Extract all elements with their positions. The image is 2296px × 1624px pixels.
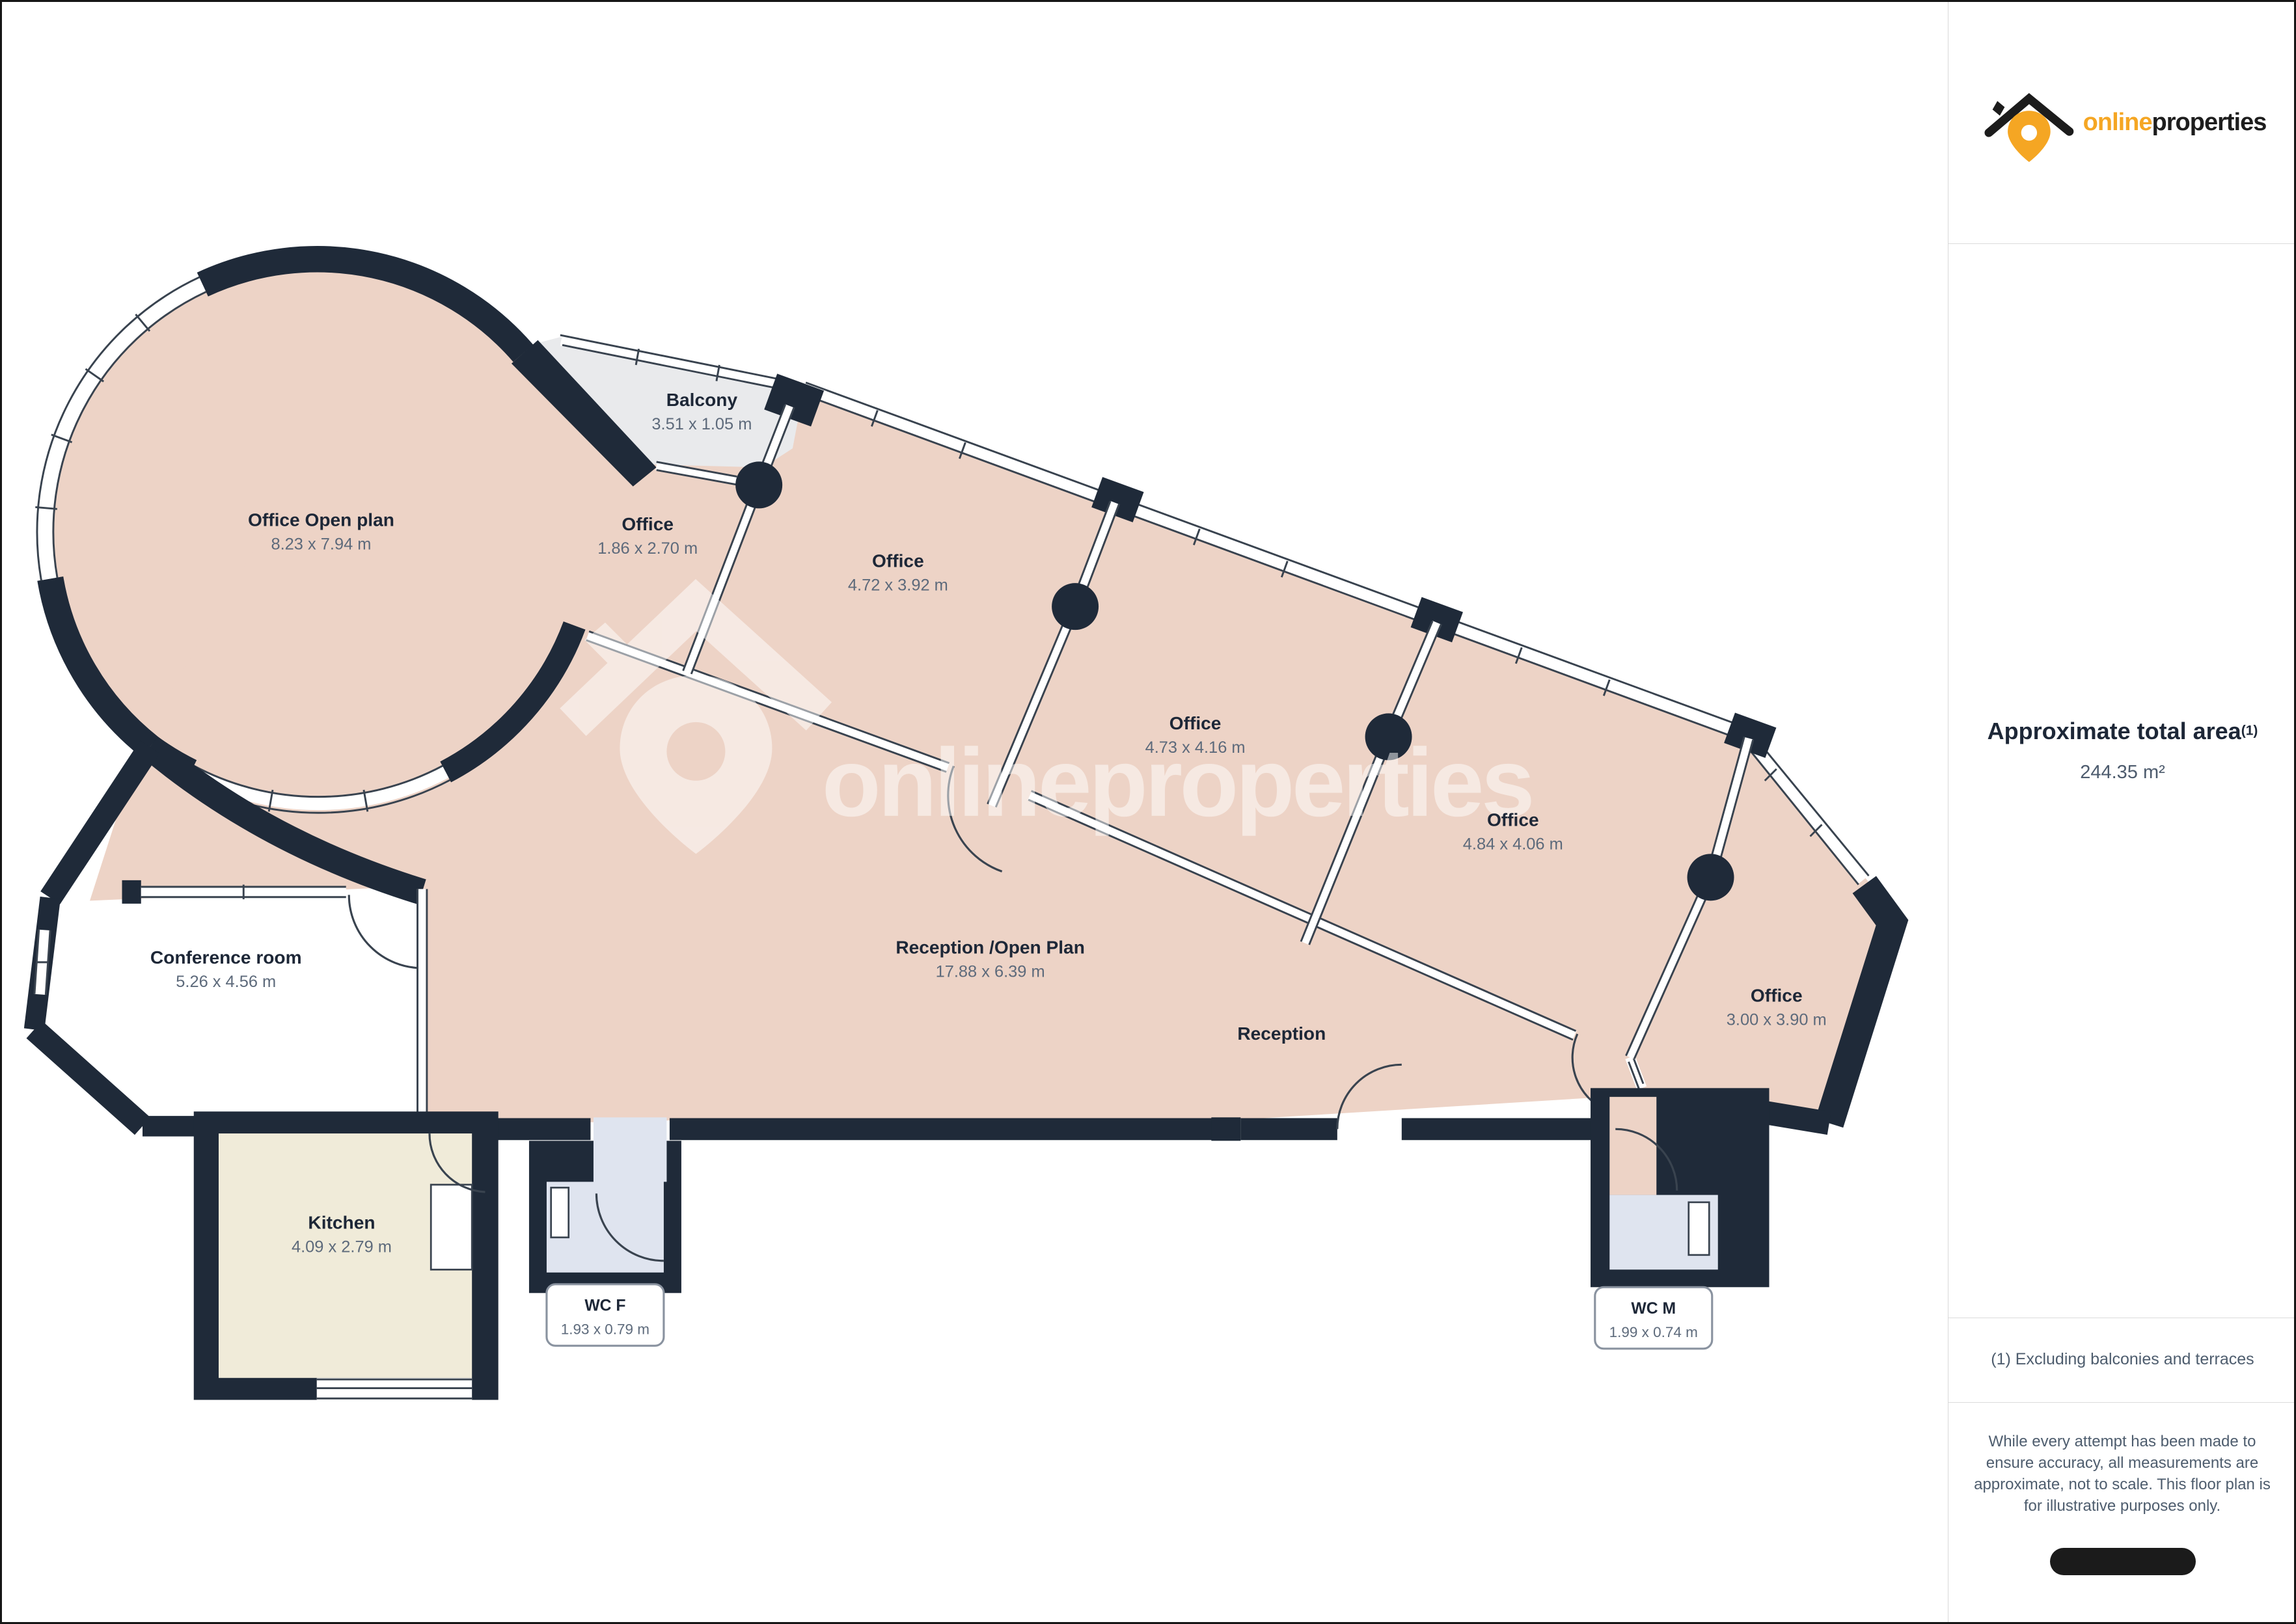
conference-room [34,880,427,1126]
svg-text:WC M: WC M [1631,1300,1676,1318]
brand-wordmark: onlineproperties [2083,109,2267,137]
wordmark-online: online [2083,109,2152,136]
svg-text:Reception: Reception [1237,1023,1326,1044]
total-area-footnote-marker: (1) [2241,724,2258,738]
total-area-title: Approximate total area [1988,718,2241,744]
svg-text:17.88 x 6.39 m: 17.88 x 6.39 m [936,962,1045,981]
svg-text:1.93 x 0.79 m: 1.93 x 0.79 m [561,1321,649,1337]
svg-text:3.51 x 1.05 m: 3.51 x 1.05 m [651,415,752,433]
svg-text:Balcony: Balcony [666,390,738,410]
room-label-conference: Conference room 5.26 x 4.56 m [150,947,302,991]
svg-text:1.99 x 0.74 m: 1.99 x 0.74 m [1609,1324,1698,1340]
wc-m [1591,1088,1769,1348]
wordmark-properties: properties [2152,109,2267,136]
disclaimer-text: While every attempt has been made to ens… [1966,1431,2278,1517]
svg-text:1.86 x 2.70 m: 1.86 x 2.70 m [597,539,698,558]
footnote-text: (1) Excluding balconies and terraces [1948,1350,2296,1369]
floorplan-page: onlineproperties Office Open plan 8.23 x… [0,0,2296,1624]
brand-logo-icon [1979,79,2077,167]
svg-text:Office Open plan: Office Open plan [248,509,394,530]
floorplan-drawing: onlineproperties Office Open plan 8.23 x… [2,2,1948,1624]
divider [1948,1318,2296,1318]
svg-text:4.73 x 4.16 m: 4.73 x 4.16 m [1145,738,1246,757]
logo-block: onlineproperties [1948,2,2296,244]
chimney-icon [1992,101,2004,116]
svg-text:Office: Office [1487,810,1539,830]
svg-text:3.00 x 3.90 m: 3.00 x 3.90 m [1727,1011,1827,1029]
wall-right-office-bottom [1759,1111,1829,1123]
total-area-block: Approximate total area(1) 244.35 m² [1948,718,2296,783]
svg-text:Conference room: Conference room [150,947,302,968]
svg-text:WC F: WC F [584,1297,625,1314]
info-sidebar: onlineproperties Approximate total area(… [1948,2,2296,1622]
svg-text:4.72 x 3.92 m: 4.72 x 3.92 m [848,576,948,594]
svg-text:4.09 x 2.79 m: 4.09 x 2.79 m [292,1238,392,1256]
svg-text:5.26 x 4.56 m: 5.26 x 4.56 m [176,973,276,991]
svg-text:Office: Office [622,514,674,534]
svg-text:Kitchen: Kitchen [308,1212,375,1232]
room-label-reception: Reception [1237,1023,1326,1044]
svg-text:Reception /Open Plan: Reception /Open Plan [895,937,1085,957]
pin-hole [2021,124,2036,140]
divider [1948,1402,2296,1403]
svg-text:Office: Office [1751,986,1803,1006]
total-area-value: 244.35 m² [1948,762,2296,783]
brand-pill [2050,1548,2196,1575]
svg-text:8.23 x 7.94 m: 8.23 x 7.94 m [271,535,371,553]
svg-text:Office: Office [1169,713,1222,733]
svg-text:4.84 x 4.06 m: 4.84 x 4.06 m [1463,835,1563,854]
svg-text:Office: Office [872,550,924,571]
